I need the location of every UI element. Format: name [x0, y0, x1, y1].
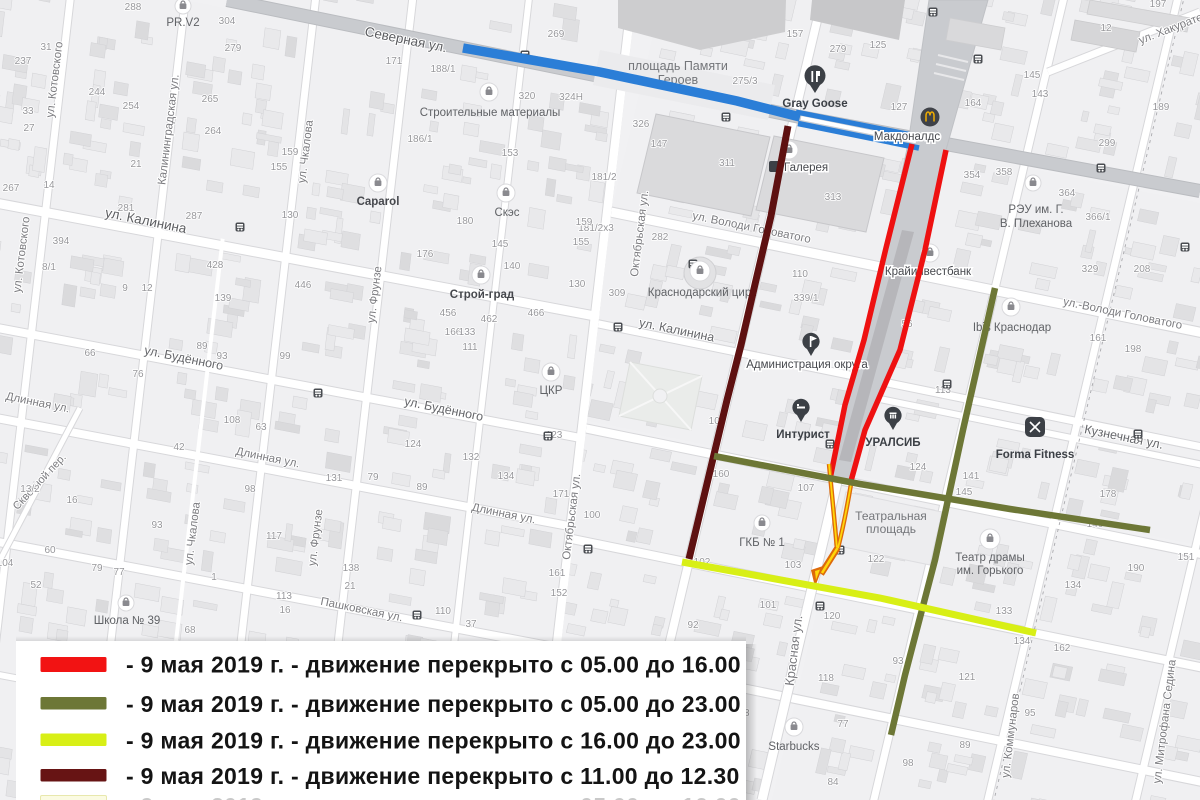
svg-text:33: 33	[22, 106, 34, 117]
svg-text:326: 326	[633, 119, 650, 130]
svg-text:145: 145	[492, 239, 509, 250]
svg-text:117: 117	[266, 531, 282, 542]
svg-text:133: 133	[459, 327, 476, 338]
svg-text:190: 190	[1128, 563, 1145, 574]
svg-text:269: 269	[548, 29, 565, 40]
svg-text:- 9 мая 2019 г. - движение пер: - 9 мая 2019 г. - движение перекрыто с 0…	[126, 691, 741, 717]
svg-text:77: 77	[837, 719, 849, 730]
svg-text:254: 254	[123, 101, 140, 112]
svg-text:12: 12	[1100, 23, 1112, 34]
svg-text:31: 31	[40, 42, 52, 53]
svg-text:110: 110	[435, 606, 451, 617]
svg-text:121: 121	[959, 672, 976, 683]
svg-text:125: 125	[870, 40, 887, 51]
svg-text:124: 124	[405, 439, 422, 450]
svg-text:Театральная: Театральная	[855, 509, 927, 523]
svg-text:21: 21	[130, 159, 142, 170]
svg-text:98: 98	[902, 758, 914, 769]
svg-text:364: 364	[1059, 188, 1076, 199]
svg-text:188/1: 188/1	[430, 64, 455, 75]
svg-text:Крайинвестбанк: Крайинвестбанк	[885, 266, 972, 278]
svg-text:130: 130	[569, 279, 586, 290]
svg-text:РЭУ им. Г.: РЭУ им. Г.	[1008, 204, 1063, 216]
svg-text:Краснодарский цирк: Краснодарский цирк	[648, 287, 757, 299]
svg-text:Gray Goose: Gray Goose	[782, 98, 847, 110]
svg-text:Forma Fitness: Forma Fitness	[996, 449, 1075, 461]
svg-text:159: 159	[576, 217, 593, 228]
svg-text:282: 282	[652, 232, 669, 243]
svg-text:133: 133	[996, 606, 1013, 617]
svg-text:108: 108	[224, 415, 241, 426]
svg-text:Caparol: Caparol	[357, 196, 400, 208]
svg-text:PR.V2: PR.V2	[166, 17, 199, 29]
svg-text:37: 37	[465, 619, 477, 630]
svg-text:198: 198	[1125, 344, 1142, 355]
svg-text:63: 63	[255, 422, 267, 433]
svg-text:95: 95	[1024, 708, 1036, 719]
svg-text:21: 21	[344, 581, 356, 592]
svg-text:189: 189	[1153, 102, 1170, 113]
svg-text:161: 161	[1090, 333, 1107, 344]
svg-text:- 9 мая 2019 г. - движение пер: - 9 мая 2019 г. - движение перекрыто с 1…	[126, 763, 740, 789]
svg-text:279: 279	[225, 43, 242, 54]
svg-text:93: 93	[151, 520, 163, 531]
svg-text:52: 52	[30, 580, 42, 591]
svg-text:162: 162	[1054, 643, 1071, 654]
svg-text:Интурист: Интурист	[776, 429, 830, 441]
svg-text:9: 9	[122, 283, 128, 294]
svg-text:101: 101	[760, 600, 777, 611]
svg-text:151: 151	[1178, 552, 1195, 563]
svg-text:181/2: 181/2	[591, 172, 616, 183]
svg-text:- 9 мая 2019 г. - движение пер: - 9 мая 2019 г. - движение перекрыто с 1…	[126, 728, 741, 754]
svg-text:Театр драмы: Театр драмы	[955, 552, 1024, 564]
svg-text:Администрация округа: Администрация округа	[746, 359, 868, 371]
svg-text:462: 462	[481, 314, 498, 325]
svg-text:143: 143	[1032, 89, 1049, 100]
svg-text:Галерея: Галерея	[784, 162, 828, 174]
svg-text:145: 145	[1024, 70, 1041, 81]
svg-text:287: 287	[186, 211, 203, 222]
svg-text:134: 134	[1014, 636, 1031, 647]
svg-text:118: 118	[818, 673, 834, 684]
svg-text:324Н: 324Н	[559, 92, 583, 103]
svg-text:288: 288	[125, 2, 142, 13]
svg-text:92: 92	[687, 620, 699, 631]
svg-text:79: 79	[91, 563, 103, 574]
svg-text:68: 68	[184, 625, 196, 636]
svg-text:446: 446	[295, 280, 312, 291]
svg-text:им. Горького: им. Горького	[957, 565, 1024, 577]
svg-text:153: 153	[502, 148, 519, 159]
svg-text:110: 110	[792, 269, 808, 280]
svg-text:186/1: 186/1	[407, 134, 432, 145]
svg-text:103: 103	[785, 560, 802, 571]
svg-text:354: 354	[964, 170, 981, 181]
svg-text:79: 79	[367, 472, 379, 483]
svg-text:176: 176	[417, 249, 434, 260]
svg-text:138: 138	[343, 563, 360, 574]
svg-text:84: 84	[827, 777, 839, 788]
svg-text:366/1: 366/1	[1085, 212, 1110, 223]
svg-text:281: 281	[118, 203, 135, 214]
svg-text:178: 178	[1100, 489, 1117, 500]
svg-text:Строй-град: Строй-град	[450, 289, 515, 301]
svg-text:275/3: 275/3	[732, 76, 757, 87]
svg-text:279: 279	[830, 44, 847, 55]
svg-text:124: 124	[910, 462, 927, 473]
svg-text:141: 141	[963, 471, 980, 482]
svg-text:140: 140	[504, 261, 521, 272]
svg-text:139: 139	[215, 293, 232, 304]
svg-text:16: 16	[279, 605, 291, 616]
svg-text:89: 89	[959, 740, 971, 751]
svg-text:площадь Памяти: площадь Памяти	[628, 59, 728, 73]
svg-text:99: 99	[279, 351, 291, 362]
svg-text:180: 180	[457, 216, 474, 227]
svg-text:УРАЛСИБ: УРАЛСИБ	[865, 437, 920, 449]
svg-text:160: 160	[713, 469, 730, 480]
svg-text:107: 107	[798, 483, 815, 494]
svg-text:155: 155	[271, 162, 288, 173]
svg-text:93: 93	[216, 351, 228, 362]
svg-text:134: 134	[498, 471, 515, 482]
svg-text:208: 208	[1134, 264, 1151, 275]
svg-text:197: 197	[1150, 0, 1167, 10]
svg-text:ГКБ № 1: ГКБ № 1	[739, 537, 785, 549]
svg-text:Макдоналдс: Макдоналдс	[874, 131, 940, 143]
svg-text:8/1: 8/1	[42, 262, 56, 273]
svg-text:265: 265	[202, 94, 219, 105]
svg-text:358: 358	[996, 167, 1013, 178]
svg-text:93: 93	[892, 656, 904, 667]
svg-text:130: 130	[282, 210, 299, 221]
svg-text:339/1: 339/1	[793, 293, 818, 304]
svg-text:122: 122	[868, 554, 885, 565]
svg-text:1: 1	[211, 572, 217, 583]
svg-text:66: 66	[84, 348, 96, 359]
svg-text:16: 16	[66, 495, 78, 506]
svg-text:27: 27	[23, 123, 35, 134]
svg-text:466: 466	[528, 308, 545, 319]
svg-text:267: 267	[3, 183, 20, 194]
svg-text:159: 159	[282, 147, 299, 158]
svg-text:145: 145	[956, 487, 973, 498]
svg-text:14: 14	[43, 180, 55, 191]
svg-text:157: 157	[787, 29, 804, 40]
svg-text:60: 60	[44, 545, 56, 556]
svg-text:89: 89	[196, 341, 208, 352]
svg-text:313: 313	[825, 192, 842, 203]
svg-text:42: 42	[173, 442, 185, 453]
svg-text:147: 147	[651, 139, 668, 150]
svg-text:100: 100	[584, 510, 601, 521]
svg-text:155: 155	[573, 237, 590, 248]
svg-text:111: 111	[462, 342, 478, 353]
svg-text:Скэс: Скэс	[494, 207, 519, 219]
svg-text:76: 76	[132, 369, 144, 380]
svg-text:Starbucks: Starbucks	[768, 741, 819, 753]
svg-text:13/2: 13/2	[20, 484, 40, 495]
svg-text:Школа № 39: Школа № 39	[94, 615, 160, 627]
svg-text:237: 237	[15, 56, 32, 67]
svg-text:264: 264	[205, 126, 222, 137]
svg-text:131: 131	[326, 473, 343, 484]
svg-text:456: 456	[440, 308, 457, 319]
svg-text:244: 244	[89, 87, 106, 98]
svg-text:113: 113	[276, 591, 292, 602]
svg-text:329: 329	[1082, 264, 1099, 275]
svg-text:- 9 мая 2019 г. - движение пер: - 9 мая 2019 г. - движение перекрыто с 0…	[126, 793, 741, 800]
svg-text:В. Плеханова: В. Плеханова	[1000, 218, 1073, 230]
svg-text:12: 12	[141, 283, 153, 294]
svg-text:428: 428	[207, 260, 224, 271]
svg-text:площадь: площадь	[866, 522, 916, 536]
svg-text:134: 134	[1065, 580, 1082, 591]
svg-text:164: 164	[965, 98, 982, 109]
svg-text:132: 132	[463, 452, 480, 463]
svg-text:Строительные материалы: Строительные материалы	[420, 107, 561, 119]
svg-text:77: 77	[113, 567, 125, 578]
svg-text:171: 171	[386, 56, 403, 67]
svg-text:98: 98	[244, 484, 256, 495]
svg-text:104: 104	[0, 558, 14, 569]
svg-text:127: 127	[891, 102, 908, 113]
svg-text:120: 120	[824, 611, 841, 622]
svg-text:320: 320	[519, 91, 536, 102]
svg-text:ЦКР: ЦКР	[540, 385, 563, 397]
svg-text:304: 304	[219, 16, 236, 27]
svg-text:- 9 мая 2019 г. - движение пер: - 9 мая 2019 г. - движение перекрыто с 0…	[126, 652, 741, 678]
svg-text:152: 152	[551, 588, 568, 599]
svg-text:311: 311	[719, 158, 735, 169]
svg-text:299: 299	[1099, 138, 1116, 149]
svg-text:171: 171	[553, 489, 570, 500]
svg-text:89: 89	[416, 482, 428, 493]
svg-text:309: 309	[609, 288, 626, 299]
svg-text:394: 394	[53, 236, 70, 247]
svg-text:161: 161	[549, 568, 566, 579]
